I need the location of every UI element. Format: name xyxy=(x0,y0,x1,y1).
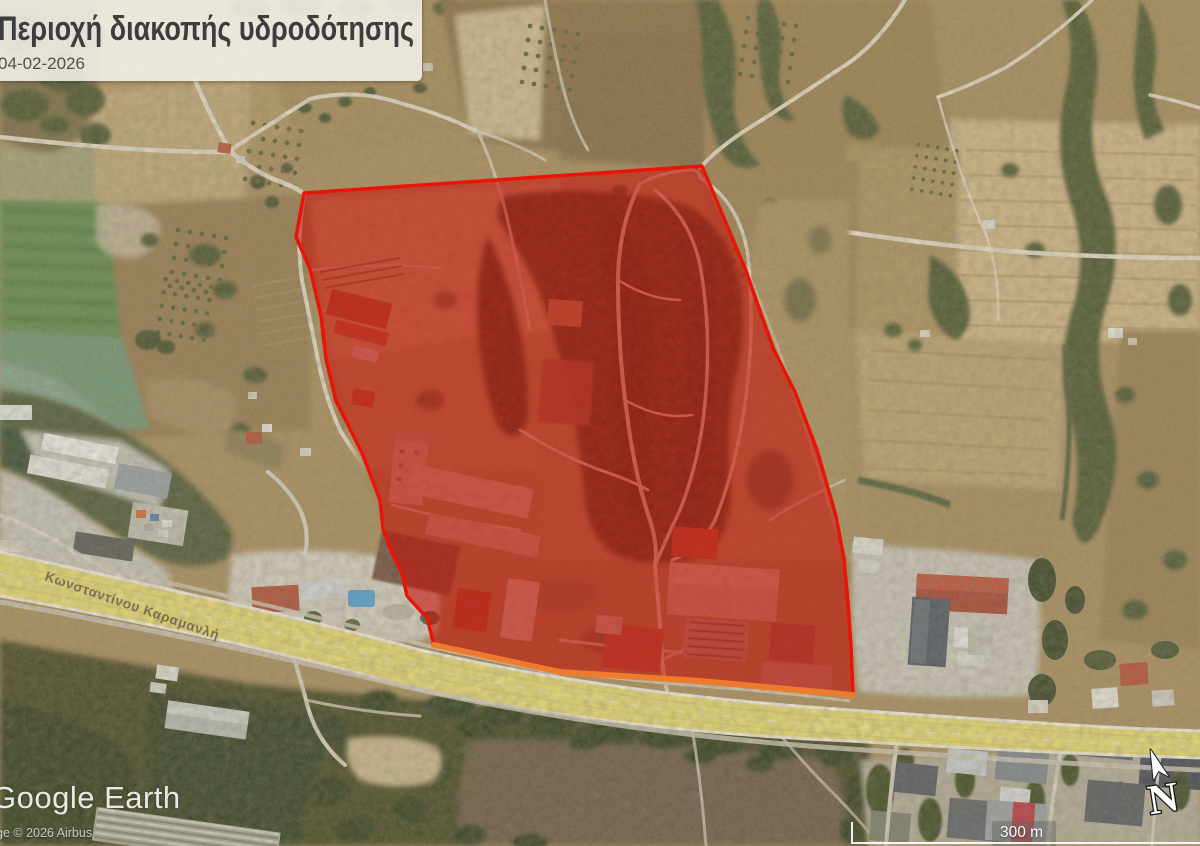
svg-text:N: N xyxy=(1145,774,1182,824)
